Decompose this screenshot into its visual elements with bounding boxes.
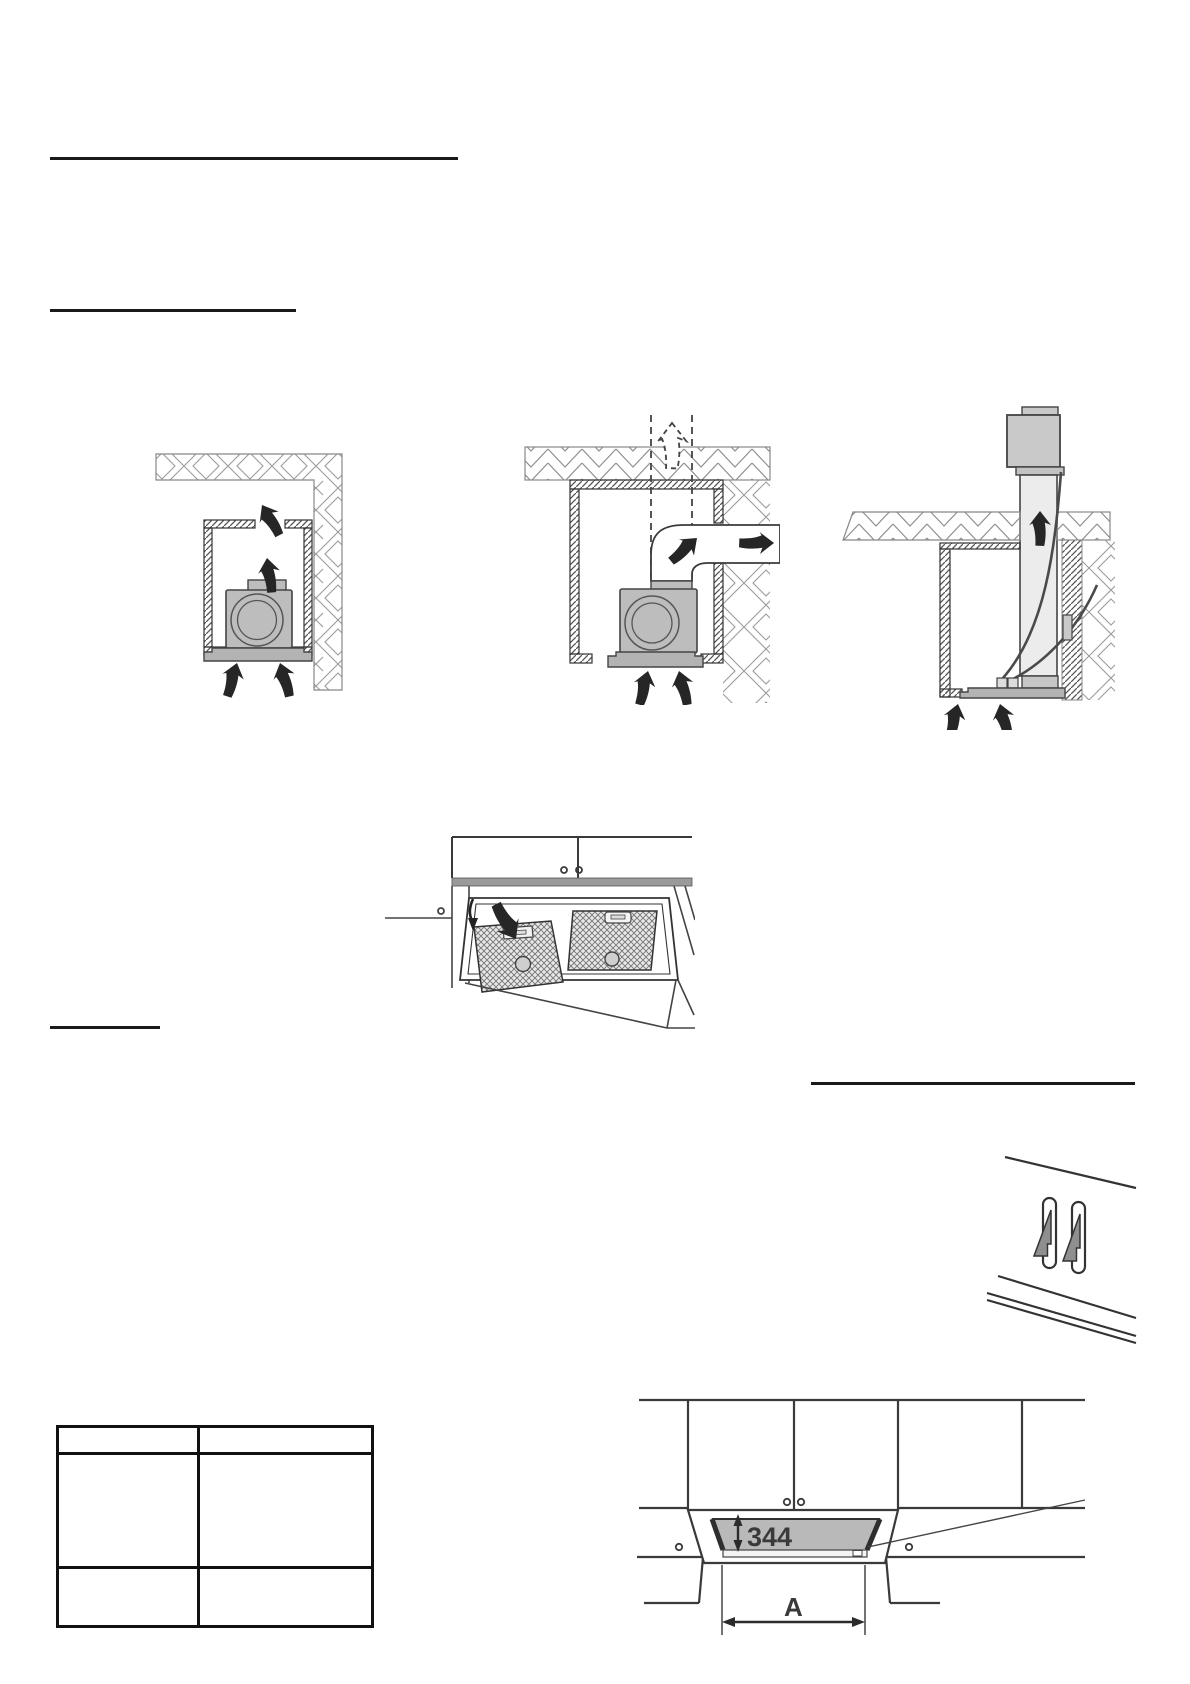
figure-cutout: 344 A (590, 1395, 1090, 1640)
figure-filters (385, 765, 695, 1035)
spec-table (56, 1425, 374, 1628)
filter-edge-profile (723, 1550, 867, 1557)
cable-clamp (1063, 615, 1072, 640)
cabinet-bottom-edge (452, 878, 692, 886)
manual-page: 344 A (0, 0, 1190, 1684)
blower-unit (608, 581, 703, 667)
figure-side-duct (480, 385, 780, 705)
table-cell (199, 1454, 373, 1568)
filter-being-removed (474, 921, 563, 992)
heading-rule-top (50, 157, 458, 160)
width-dimension: A (722, 1565, 865, 1635)
hood-base (960, 676, 1065, 698)
filter-installed (568, 911, 657, 970)
wall-section (723, 480, 770, 703)
blower-unit (204, 580, 312, 661)
figure-hooks (900, 1080, 1160, 1350)
heading-rule-left-lower (50, 1026, 160, 1029)
remote-blower-box (1007, 407, 1064, 475)
figure-remote-blower (825, 370, 1120, 730)
table-cell (199, 1427, 373, 1454)
cabinet-front (452, 837, 692, 878)
table-cell (58, 1427, 199, 1454)
figure-recirculation (140, 400, 390, 700)
ceiling-section (525, 447, 770, 480)
table-cell (58, 1568, 199, 1627)
ceiling-section (843, 512, 1110, 540)
width-dimension-label: A (784, 1592, 803, 1622)
filter-knob (605, 952, 619, 966)
filter-knob (516, 957, 531, 972)
table-cell (58, 1454, 199, 1568)
panel-edges (987, 1157, 1136, 1343)
table-cell (199, 1568, 373, 1627)
heading-rule-second (50, 309, 296, 312)
height-dimension-label: 344 (747, 1522, 792, 1552)
